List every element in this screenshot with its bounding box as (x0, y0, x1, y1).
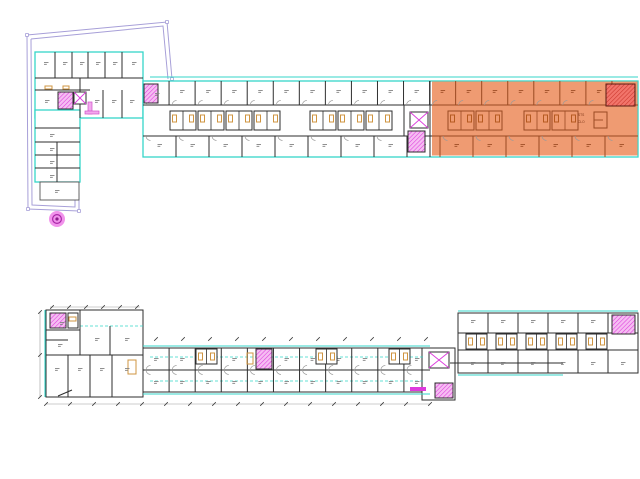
elevator-symbol (74, 92, 86, 104)
stair-symbol (408, 131, 425, 152)
boundary-corner-marker (78, 210, 81, 213)
stair-symbol (50, 313, 66, 328)
boundary-corner-marker (171, 78, 174, 81)
room-tag-text: STS (578, 113, 584, 117)
highlighted-stair-room (606, 84, 635, 106)
stair-symbol (612, 315, 635, 334)
boundary-corner-marker (166, 21, 169, 24)
boundary-corner-marker (26, 34, 29, 37)
elevator-symbol (410, 112, 428, 128)
stair-symbol (435, 383, 453, 398)
tree-symbol (49, 211, 65, 227)
boundary-corner-marker (27, 208, 30, 211)
room-tag-text: CLO (578, 120, 585, 124)
floor-plan-sheet: STSCLO (0, 0, 640, 479)
cad-canvas[interactable]: STSCLO (0, 0, 640, 479)
elevator-symbol (429, 352, 449, 368)
stair-symbol (58, 92, 73, 109)
stair-symbol (256, 349, 272, 369)
